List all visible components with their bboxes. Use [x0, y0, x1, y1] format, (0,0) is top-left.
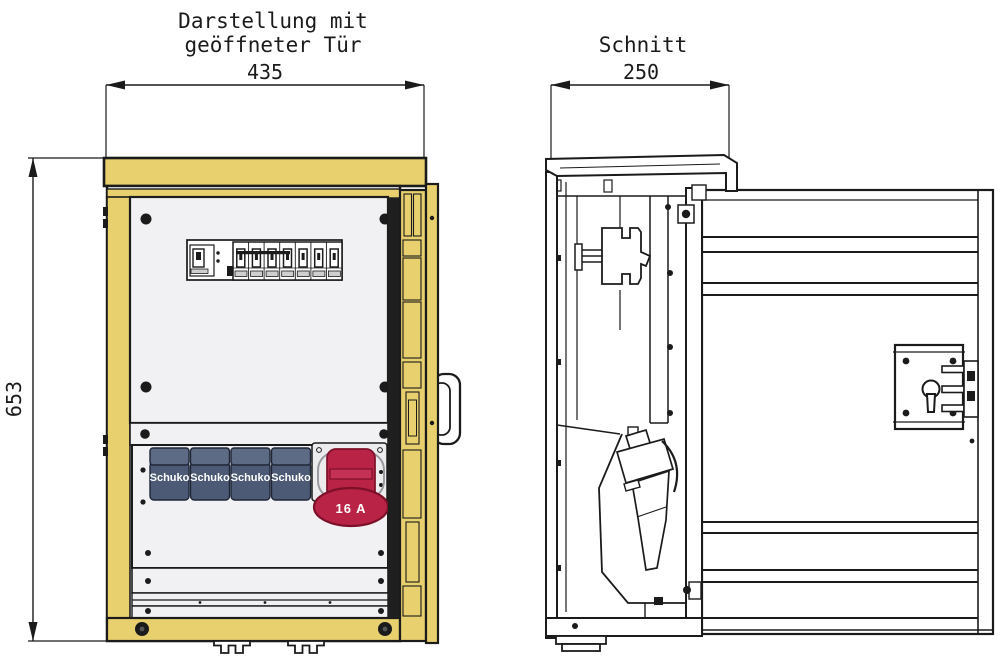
schuko-label: Schuko — [150, 472, 190, 484]
lower-panels — [132, 568, 388, 618]
door-gap-shadow — [388, 198, 400, 618]
toggle-tie-bar — [236, 251, 290, 254]
dimension-height: 653 — [2, 158, 108, 641]
section-door — [702, 190, 993, 634]
cee-socket-16a: 16 A — [312, 443, 388, 526]
intermediate-strip — [130, 423, 388, 445]
dim-value-250: 250 — [623, 60, 659, 84]
schuko-socket-3: Schuko — [231, 448, 271, 500]
cabinet-roof — [104, 158, 426, 186]
door-hinge-bracket — [692, 185, 706, 200]
left-view-title-line2: geöffneter Tür — [184, 33, 361, 57]
distribution-cabinet-drawing: Darstellung mit geöffneter Tür Schnitt 4… — [0, 0, 1000, 657]
latch-column — [400, 190, 426, 641]
schuko-socket-2: Schuko — [190, 448, 230, 500]
module-tabs — [235, 271, 340, 277]
cee-rating-label: 16 A — [336, 501, 367, 516]
view-titles: Darstellung mit geöffneter Tür Schnitt — [178, 9, 687, 57]
equipment-panel — [130, 197, 388, 423]
schuko-socket-1: Schuko — [150, 448, 190, 500]
left-view-title-line1: Darstellung mit — [178, 9, 368, 33]
mcb-modules — [233, 242, 342, 280]
technical-drawing-page: Darstellung mit geöffneter Tür Schnitt 4… — [0, 0, 1000, 657]
section-breaker — [575, 196, 650, 330]
opened-door-edge — [426, 184, 438, 643]
schuko-socket-4: Schuko — [271, 448, 311, 500]
breaker-row — [187, 240, 342, 280]
section-cee-socket — [617, 427, 677, 570]
open-door-view: Schuko Schuko Schuko Schuko 16 A — [103, 158, 460, 653]
section-view — [546, 155, 993, 651]
din-rail-end — [227, 266, 233, 276]
mounting-feet — [214, 641, 324, 653]
section-roof — [546, 155, 737, 191]
schuko-label: Schuko — [231, 472, 271, 484]
dim-value-435: 435 — [247, 60, 283, 84]
mounting-plate-profile — [650, 196, 673, 423]
section-view-title: Schnitt — [599, 33, 688, 57]
dim-value-653: 653 — [2, 381, 26, 417]
lock-latch-bars — [942, 361, 978, 417]
frame-left-profile — [107, 197, 130, 618]
schuko-label: Schuko — [271, 472, 311, 484]
cabinet-base-bar — [107, 618, 400, 641]
schuko-label: Schuko — [190, 472, 230, 484]
